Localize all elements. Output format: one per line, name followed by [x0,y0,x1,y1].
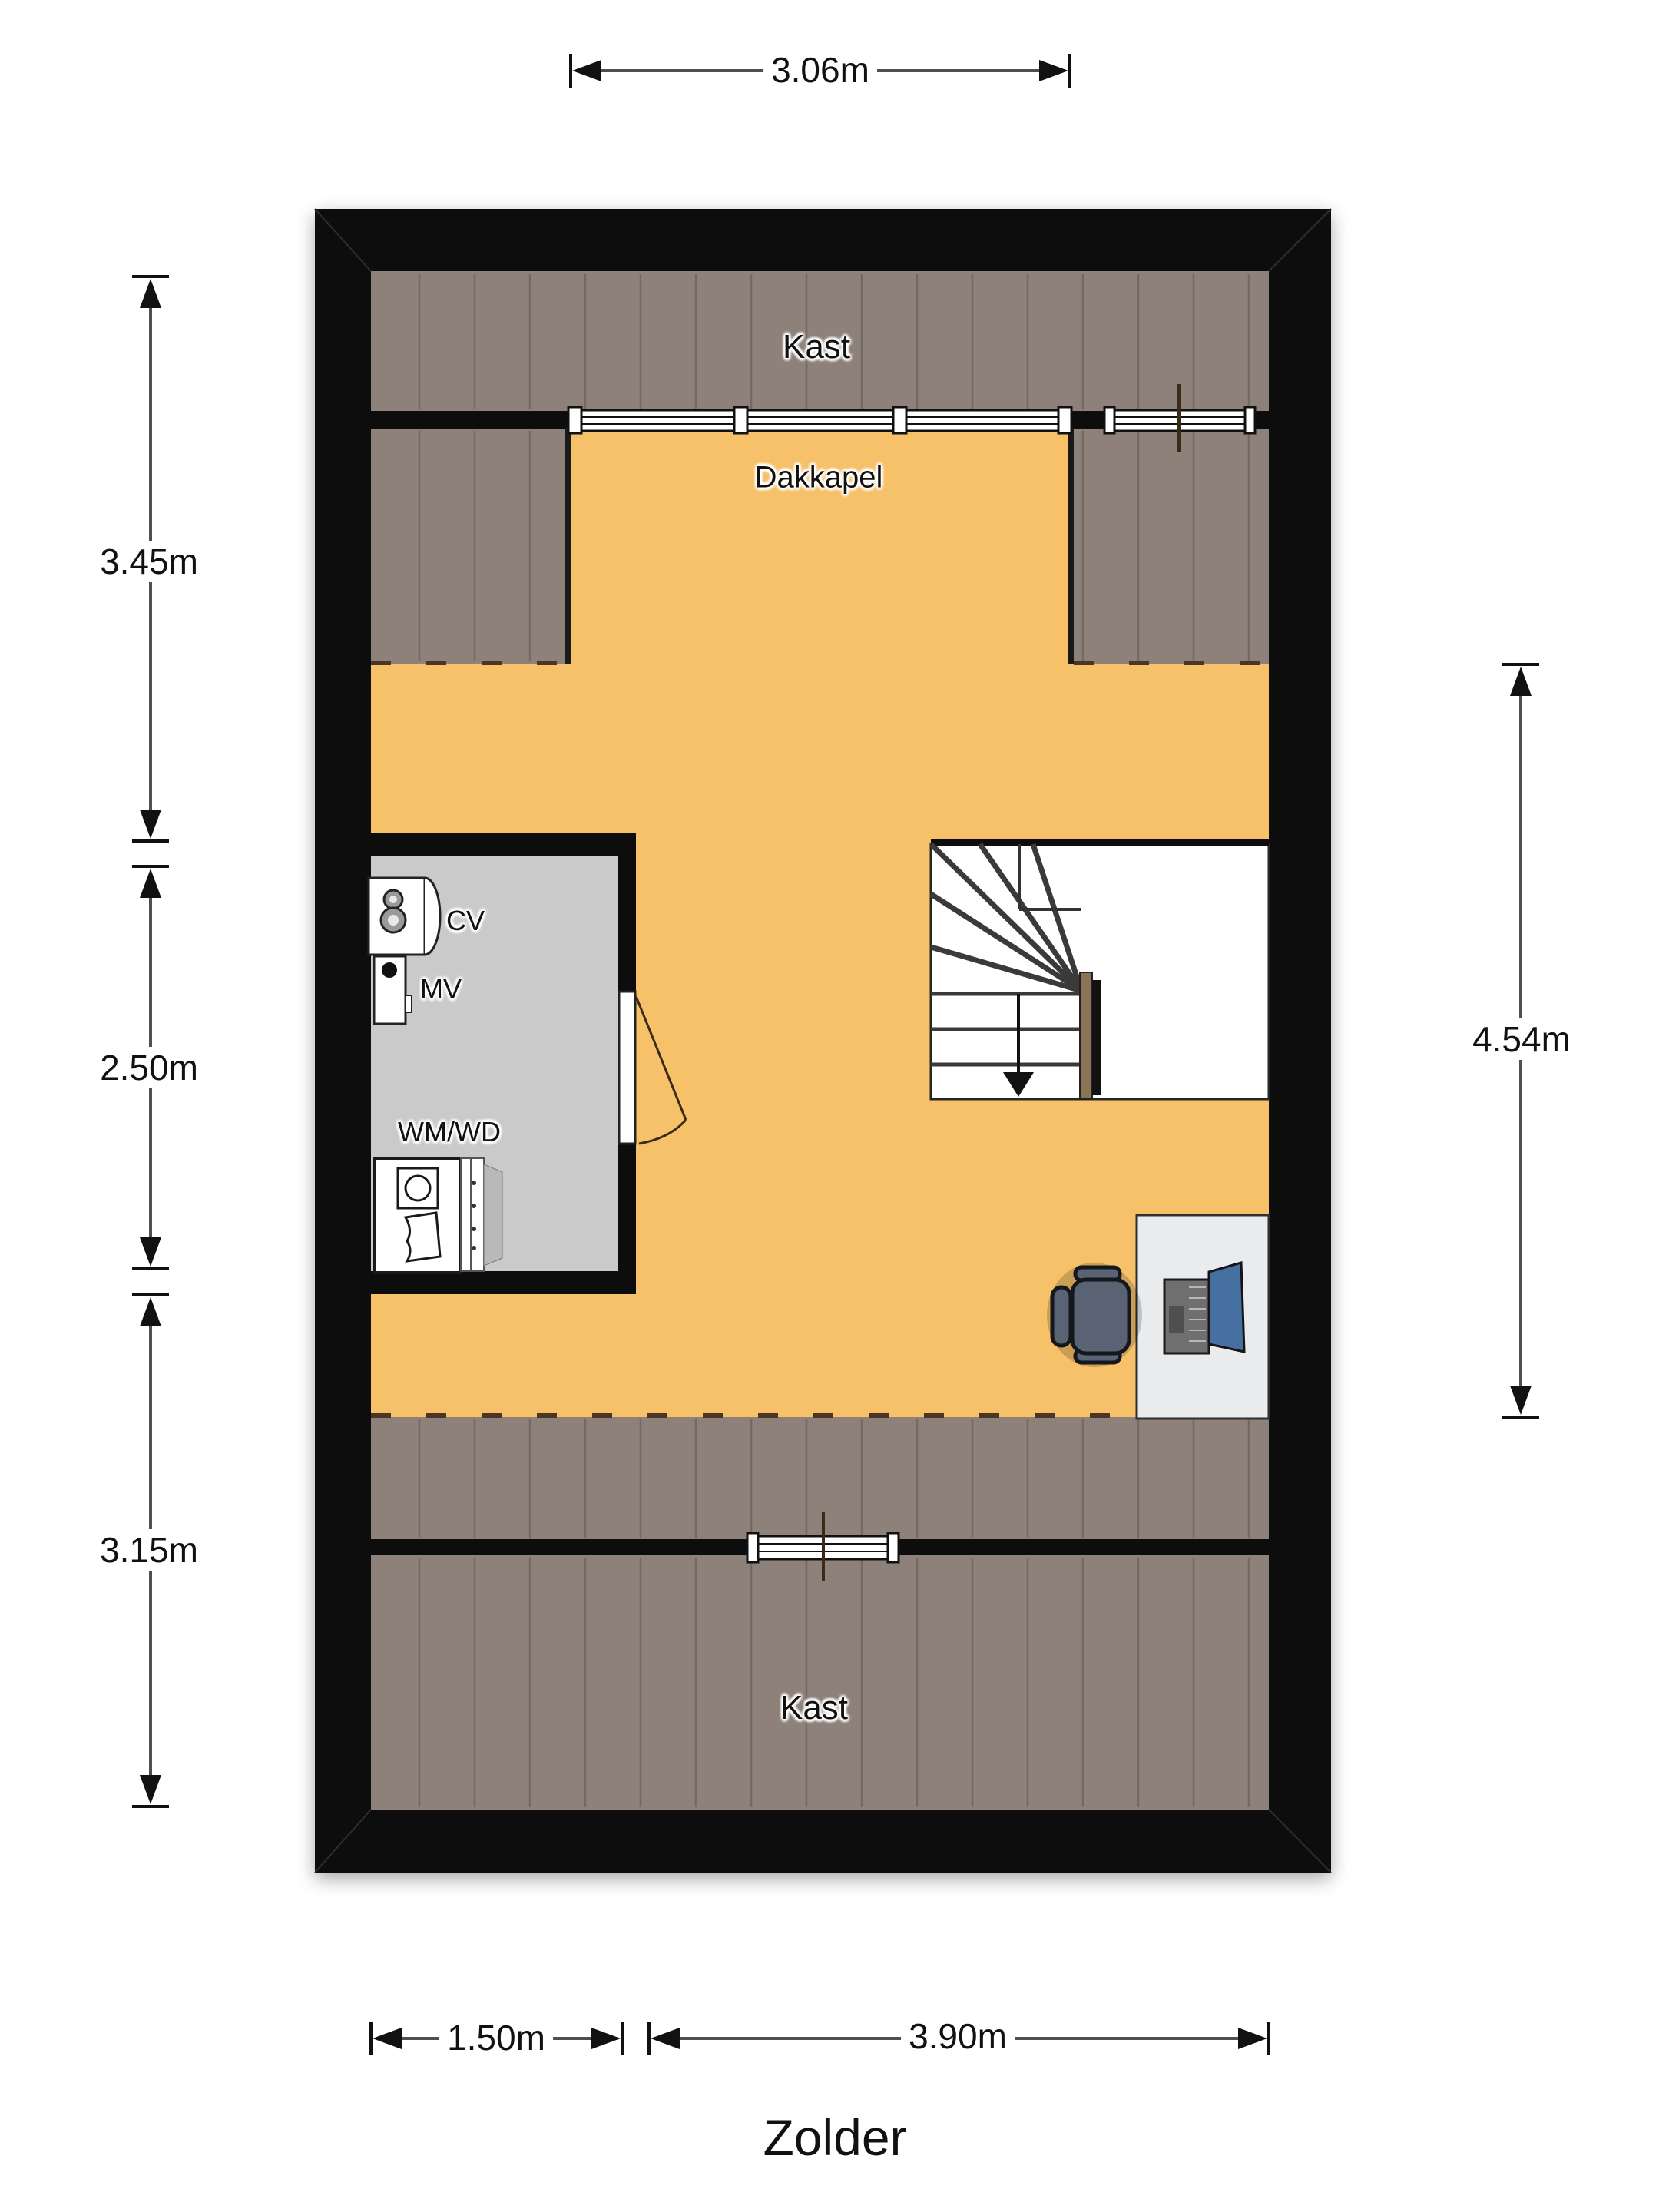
roof-band-lower [371,1417,1269,1539]
roof-flank-left [371,429,566,664]
recess-edge-right [1068,428,1074,664]
dimension-label-left-middle: 2.50m [92,1047,206,1088]
room-label-mv: MV [420,973,462,1005]
closet-door-leaf [461,1158,502,1271]
dimension-label-top: 3.06m [763,49,877,91]
laundry-basket-icon [406,1213,440,1261]
washing-machine-icon [374,1158,461,1273]
dimension-label-bottom-left: 1.50m [439,2017,553,2058]
cv-boiler-icon [369,878,440,955]
dimension-label-left-lower: 3.15m [92,1529,206,1571]
room-label-kast-top: Kast [783,328,850,366]
dimension-label-left-upper: 3.45m [92,541,206,582]
dakkapel-window [568,407,1071,433]
mv-vent-icon [374,956,412,1024]
room-label-kast-bottom: Kast [780,1689,848,1727]
room-label-wm-wd: WM/WD [398,1116,501,1148]
floor-title: Zolder [763,2108,906,2167]
room-label-cv: CV [446,905,485,937]
stair-newel [1080,972,1092,1099]
stair-handrail [1092,980,1101,1095]
dimension-label-right: 4.54m [1465,1018,1578,1060]
office-chair-icon [1047,1263,1142,1367]
kast-bottom-area [371,1555,1269,1810]
roof-flank-right [1074,429,1269,664]
dimension-label-bottom-right: 3.90m [901,2015,1015,2057]
staircase [931,839,1269,1099]
room-label-dakkapel: Dakkapel [755,461,883,495]
floorplan-page: Kast Dakkapel CV MV WM/WD Kast 3.06m 3.4… [0,0,1659,2212]
recess-edge-left [565,428,571,664]
